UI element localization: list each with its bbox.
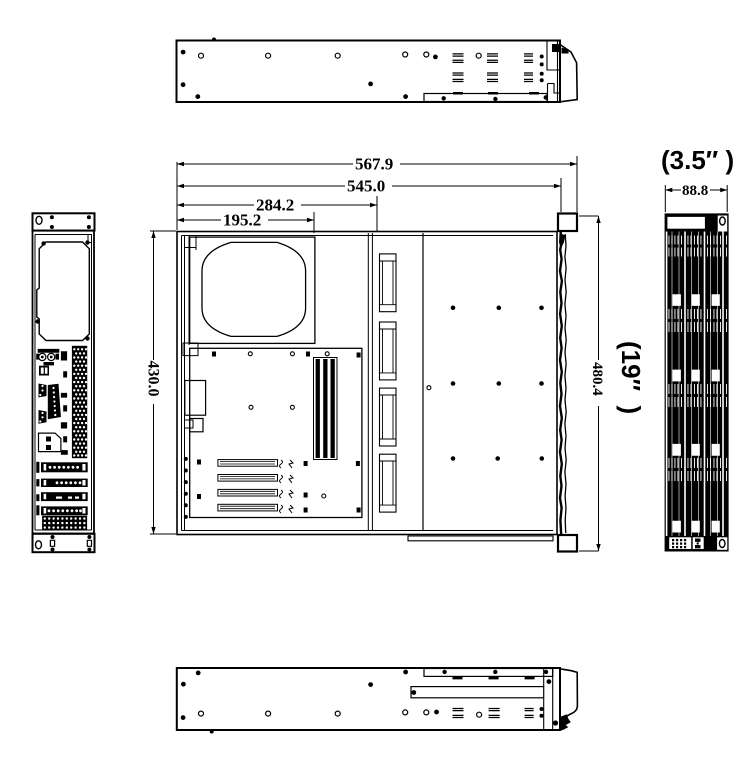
svg-text:88.8: 88.8: [682, 183, 708, 199]
svg-text:(3.5″ ): (3.5″ ): [661, 145, 734, 175]
svg-text:480.4: 480.4: [589, 362, 605, 396]
svg-text:430.0: 430.0: [145, 361, 162, 397]
svg-text:195.2: 195.2: [223, 211, 261, 230]
svg-text:567.9: 567.9: [355, 155, 393, 174]
svg-text:284.2: 284.2: [256, 196, 294, 215]
svg-text:545.0: 545.0: [347, 177, 385, 196]
svg-text:(19″ ): (19″ ): [616, 341, 646, 414]
